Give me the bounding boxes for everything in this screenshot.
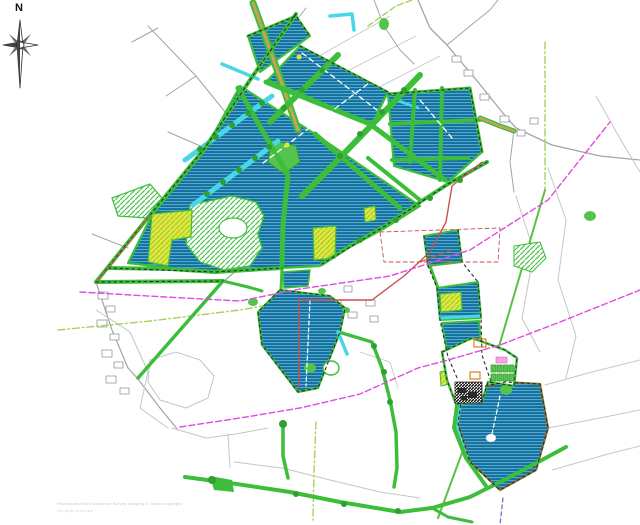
base-road-4 [168,132,205,148]
base-road-43 [517,130,525,136]
tree-17 [457,177,463,183]
tree-0 [197,146,203,152]
os-attribution-line1: Reproduced from Ordnance Survey mapping … [57,501,182,506]
tree-13 [337,153,343,159]
base-road-36 [114,362,123,368]
hedgerow-19 [281,268,282,290]
base-road-34 [110,334,119,340]
hedgerow-20 [342,333,397,487]
base-road-48 [344,286,352,292]
tree-21 [371,343,377,349]
base-road-24 [234,462,420,498]
substation-10 [503,374,508,381]
compass-north-label: N [15,2,23,14]
tree-19 [393,217,399,223]
hedgerow-8 [440,88,442,180]
tree-22 [381,369,387,375]
tree-6 [220,179,226,185]
hedgerow-25 [430,266,438,288]
tree-20 [357,237,363,243]
planting-yellow-2 [440,292,462,312]
base-road-49 [370,316,378,322]
substation-1 [458,388,466,393]
base-road-37 [106,376,116,383]
tree-5 [204,191,210,197]
tree-7 [236,167,242,173]
substation-8 [491,374,496,381]
base-road-39 [452,56,461,62]
base-road-26 [148,352,214,408]
hedgerow-31 [223,281,262,291]
tree-27 [395,508,401,514]
woodland-7 [248,298,258,306]
tree-9 [266,144,272,150]
tree-18 [427,195,433,201]
tree-12 [357,131,363,137]
planting-yellow-3 [364,206,376,222]
solar-field-4 [258,290,345,392]
woodland-9 [342,307,350,313]
base-road-40 [464,70,473,76]
woodland-1 [219,218,247,238]
footpath-2 [500,498,503,525]
tree-14 [319,67,325,73]
base-road-15 [548,168,576,378]
base-road-27 [228,434,230,468]
substation-5 [497,365,502,372]
substation-7 [509,365,514,372]
tree-24 [208,476,216,484]
substation-4 [491,365,496,372]
base-road-12 [447,0,498,45]
solar-field-10 [283,270,310,288]
substation-11 [509,374,514,381]
tree-11 [379,109,385,115]
base-road-17 [596,96,640,172]
tree-28 [279,420,287,428]
hedgerow-22 [432,508,472,522]
base-road-14 [510,130,514,192]
base-road-19 [548,410,640,428]
site-plan-map [0,0,640,525]
base-road-18 [545,360,640,385]
parish-line-3 [368,0,412,26]
base-road-13 [516,128,640,160]
tree-29 [297,55,302,60]
drain-4 [440,316,479,318]
solar-field-5 [424,230,462,266]
tree-3 [245,110,251,116]
woodland-8 [318,288,326,294]
drain-2 [330,14,354,30]
substation-12 [496,357,507,363]
os-attribution-line2: All rights reserved [57,508,93,513]
base-road-25 [96,310,168,428]
tree-23 [387,399,393,405]
hedgerow-23 [283,424,288,478]
woodland-5 [584,211,596,221]
tree-1 [213,134,219,140]
track-white-dash-4 [486,434,496,442]
parish-line-1 [313,422,316,520]
base-road-47 [366,300,375,306]
base-road-44 [530,118,538,124]
tree-10 [401,87,407,93]
base-road-32 [106,306,115,312]
substation-9 [497,374,502,381]
tree-4 [259,100,265,106]
tree-26 [341,501,347,507]
tree-8 [252,155,258,161]
base-road-7 [312,16,390,60]
woodland-4 [514,242,546,272]
base-road-38 [120,388,129,394]
site-plan-page: N Reproduced from Ordnance Survey mappin… [0,0,640,525]
base-road-23 [172,428,268,438]
woodland-6 [379,18,389,30]
base-road-42 [500,116,509,122]
tree-2 [229,122,235,128]
tree-16 [281,105,287,111]
parish-line-0 [58,302,286,330]
base-road-41 [480,94,489,100]
substation-6 [503,365,508,372]
base-road-46 [348,312,357,318]
base-road-1 [166,76,196,96]
substation-2 [468,392,477,398]
tree-25 [293,491,299,497]
hedgerow-18 [138,281,223,378]
woodland-10 [304,363,316,373]
base-road-2 [132,28,158,42]
tree-15 [299,87,305,93]
base-road-35 [102,350,112,357]
substation-3 [461,396,467,400]
hedgerow-10 [392,158,468,160]
tree-30 [285,143,290,148]
